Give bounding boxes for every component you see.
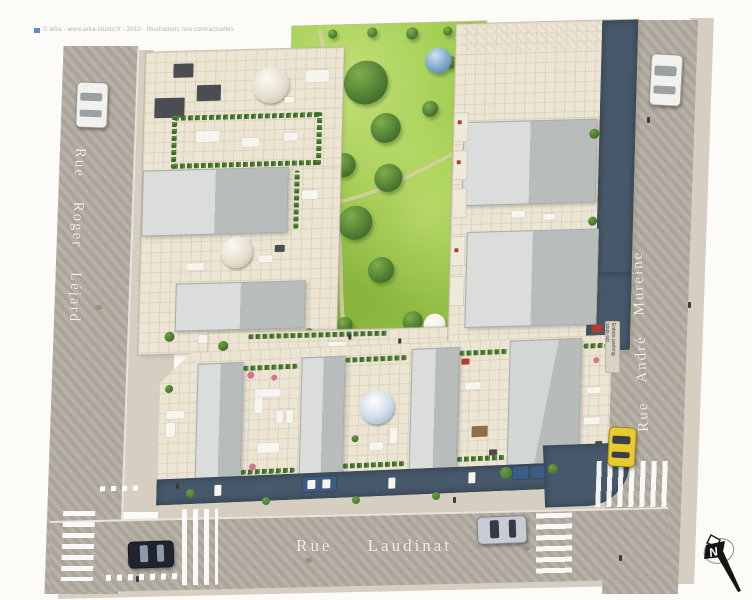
planter-icon [165,385,173,393]
terrace-table [471,426,487,438]
flower-planter-icon [593,357,599,363]
parasol-icon [360,390,395,425]
person-icon [176,483,179,489]
terrace-furniture [197,85,221,102]
terrace-lounger [186,263,204,270]
terrace-lounger [276,410,283,423]
building-northwest [138,47,344,354]
balcony [451,188,467,218]
terrace-table [305,70,329,83]
terrace-sofa [254,397,262,413]
hedge [457,455,505,462]
flower-planter-icon [271,375,277,381]
terrace-lounger [389,427,397,443]
hedge [248,331,388,340]
flat-roof [464,229,599,328]
car-windshield [139,545,148,562]
hedge [460,349,508,356]
entrance-door [388,477,395,488]
car-windshield [612,436,630,445]
terrace-sofa [166,410,184,419]
car-rear-window [653,85,675,94]
flat-roof [462,119,598,207]
terrace-furniture [511,210,525,217]
car-icon [649,53,684,107]
pitched-roof [409,347,460,473]
terrace-furniture [584,417,600,425]
terrace-furniture [275,245,285,252]
hedge [316,112,322,165]
parasol-icon [220,236,253,269]
bush-icon [548,464,558,474]
car-icon [128,540,175,569]
balcony [452,150,468,180]
car-rear-window [508,520,516,538]
terrace-furniture [302,190,318,199]
planter-icon [218,341,228,351]
balcony-furniture [457,160,461,164]
manhole-icon [305,558,312,563]
street-name-bottom: Rue Laudinat [296,536,452,556]
flower-planter-icon [461,358,469,364]
car-windshield [654,65,676,76]
hedge [171,116,177,169]
terrace-table [196,131,220,143]
car-icon [607,426,637,467]
car-windshield [489,520,499,538]
terrace-sofa [255,388,281,397]
building-east [448,20,639,355]
car-windshield [80,92,102,102]
bush-icon [262,497,270,505]
bush-icon [186,489,195,498]
hedge [346,355,408,363]
crosswalk [182,509,218,586]
bush-icon [500,467,512,479]
entrance-door [468,472,475,483]
parking-entrance-label: Entrée parking sous-sol [604,323,616,367]
facade-bush-icon [589,129,599,139]
terrace-lounger [286,410,293,423]
bush-icon [352,496,360,504]
north-arrow-icon: N [698,532,750,596]
manhole-icon [523,546,530,551]
hedge [343,461,405,469]
crosswalk [61,511,95,581]
terrace-furniture [543,214,555,220]
car-rear-window [611,451,629,458]
terrace-furniture [173,63,193,78]
person-icon [136,576,139,582]
manhole-icon [95,305,102,310]
hedge [174,112,320,121]
balcony [449,276,465,306]
person-icon [348,334,351,340]
hedge [243,364,297,371]
crosswalk [536,513,572,576]
terrace-table [241,138,259,147]
pitched-roof [175,280,306,331]
studio-logo-icon [34,28,40,33]
terrace-furniture [586,387,600,394]
person-icon [453,497,456,503]
terrace-chair [285,97,295,103]
car-icon [477,515,528,545]
road-dash-marking [100,486,138,492]
flower-planter-icon [247,371,254,378]
green-tree-icon [328,29,337,38]
green-tree-icon [443,26,452,35]
person-icon [647,117,650,123]
car-rear-window [80,110,102,118]
parked-car-icon [512,466,528,480]
person-icon [688,302,691,308]
terrace-sofa [166,423,175,437]
pitched-roof [299,356,346,480]
facade-bush-icon [588,217,597,226]
terrace-lounger [258,255,272,262]
terrace-table [284,133,298,141]
planter-icon [164,332,174,342]
terrace-furniture [489,449,497,455]
person-icon [619,555,622,561]
terrace-table [257,442,279,453]
balcony [453,112,469,142]
planter-icon [351,435,358,442]
terrace-lounger [465,382,481,390]
entrance-door [214,485,221,496]
bush-icon [432,492,440,500]
credit-text: © arka - www.arka-studio.fr - 2010 - Ill… [43,27,234,33]
car-rear-window [157,545,165,562]
pitched-roof [194,362,243,488]
hedge [293,170,300,228]
parked-car-icon [302,476,336,492]
roof-hatch [462,20,625,52]
entrance-door [592,324,602,332]
car-icon [75,81,109,128]
terrace-table [369,442,383,451]
credit-line: © arka - www.arka-studio.fr - 2010 - Ill… [34,27,234,33]
site-plan: Rue Roger Léjard Rue André Mureine Rue L… [0,0,752,600]
crosswalk [595,461,669,507]
pitched-roof [141,167,289,237]
balcony-furniture [454,248,458,252]
balcony-furniture [458,120,462,124]
